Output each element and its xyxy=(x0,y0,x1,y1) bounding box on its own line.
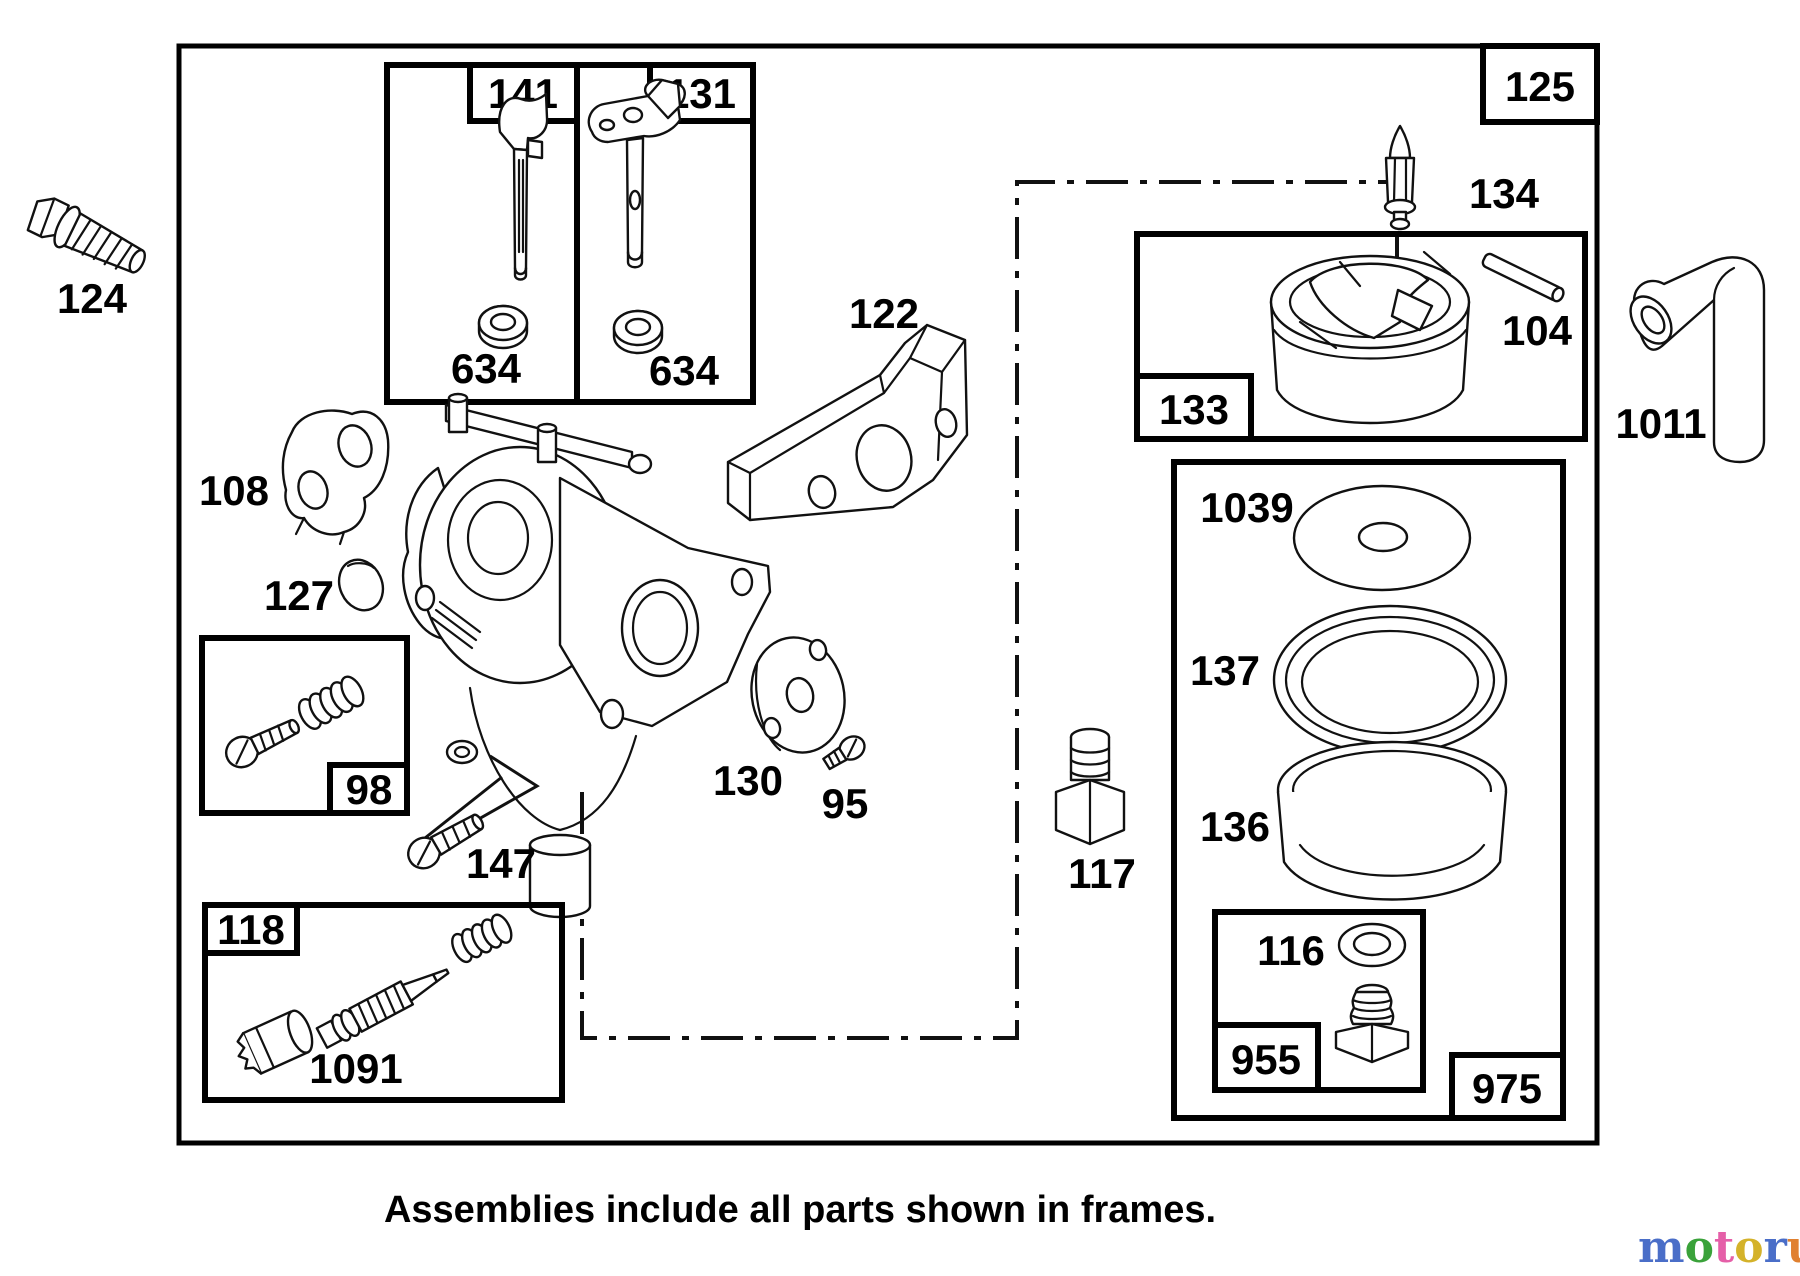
part-label-118: 118 xyxy=(217,906,285,953)
part-label-137: 137 xyxy=(1190,647,1260,694)
part-label-136: 136 xyxy=(1200,803,1270,850)
washer-634-left-drawing xyxy=(479,306,527,348)
part-label-147: 147 xyxy=(466,840,536,887)
part-label-122: 122 xyxy=(849,290,919,337)
part-label-1091: 1091 xyxy=(309,1045,402,1092)
part-label-975: 975 xyxy=(1472,1065,1542,1112)
part-label-98: 98 xyxy=(346,766,393,813)
part-label-634-left: 634 xyxy=(451,345,522,392)
part-label-955: 955 xyxy=(1231,1036,1301,1083)
part-label-634-right: 634 xyxy=(649,347,720,394)
part-label-134: 134 xyxy=(1469,170,1540,217)
part-label-1039: 1039 xyxy=(1200,484,1293,531)
part-label-95: 95 xyxy=(822,780,869,827)
logo-letter: o xyxy=(1734,1222,1763,1273)
part-label-104: 104 xyxy=(1502,307,1573,354)
float-133-drawing xyxy=(1271,252,1469,423)
logo-letter: u xyxy=(1787,1222,1800,1273)
logo-letter: t xyxy=(1714,1222,1735,1273)
parts-diagram-page: 125 141 131 634 634 xyxy=(0,0,1800,1276)
float-bowl-136-drawing xyxy=(1278,742,1506,900)
part-label-116: 116 xyxy=(1257,927,1325,974)
logo-letter: o xyxy=(1685,1222,1714,1273)
washer-116-drawing xyxy=(1339,924,1405,966)
part-label-127: 127 xyxy=(264,572,334,619)
logo-letter: m xyxy=(1638,1222,1685,1273)
part-label-130: 130 xyxy=(713,757,783,804)
caption-text: Assemblies include all parts shown in fr… xyxy=(384,1189,1216,1231)
part-label-117: 117 xyxy=(1068,850,1136,897)
bowl-gasket-1039-drawing xyxy=(1294,486,1470,590)
part-label-1011: 1011 xyxy=(1615,400,1706,447)
carburetor-parts-diagram: 125 141 131 634 634 xyxy=(0,0,1800,1276)
part-label-108: 108 xyxy=(199,467,269,514)
part-label-124: 124 xyxy=(57,275,128,322)
part-label-133: 133 xyxy=(1159,386,1229,433)
part-label-125: 125 xyxy=(1505,63,1575,110)
motoruf-logo[interactable]: motoruf™.de xyxy=(1638,1222,1800,1273)
motoruf-logo-text[interactable]: motoruf™.de xyxy=(1638,1222,1800,1273)
oring-137-drawing xyxy=(1274,606,1506,754)
logo-letter: r xyxy=(1764,1222,1788,1273)
